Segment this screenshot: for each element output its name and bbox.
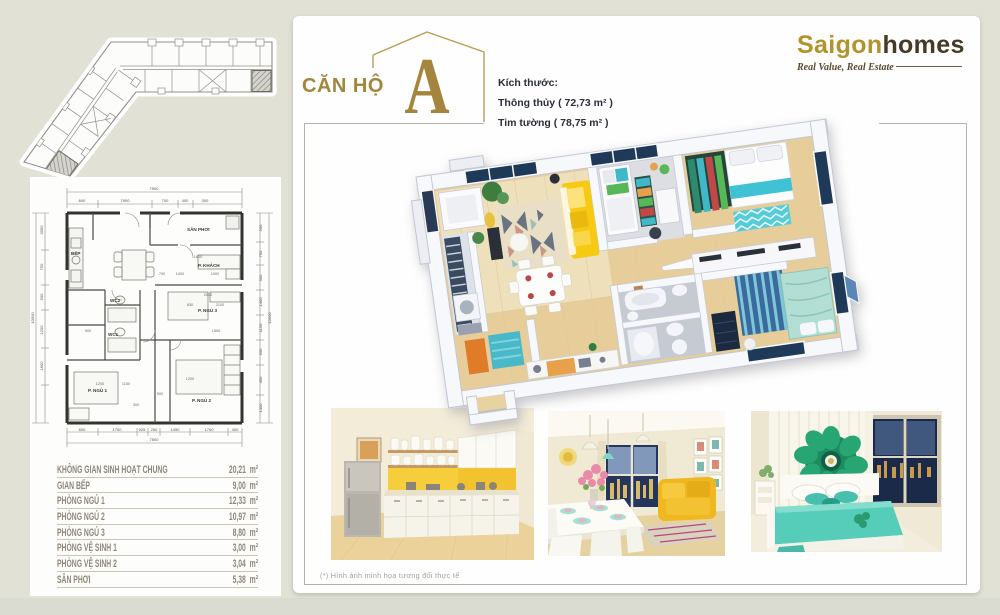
svg-text:P. KHÁCH: P. KHÁCH xyxy=(198,262,220,268)
svg-text:1400: 1400 xyxy=(258,403,263,413)
svg-text:1450: 1450 xyxy=(171,427,181,432)
svg-text:600: 600 xyxy=(258,348,263,355)
svg-text:1400: 1400 xyxy=(258,297,263,307)
svg-text:700: 700 xyxy=(159,272,165,276)
svg-text:7500: 7500 xyxy=(150,186,160,191)
svg-text:300: 300 xyxy=(133,403,139,407)
svg-text:WC1: WC1 xyxy=(108,332,119,337)
svg-text:1000: 1000 xyxy=(211,272,219,276)
svg-text:P. NGỦ 3: P. NGỦ 3 xyxy=(198,307,218,313)
svg-text:600: 600 xyxy=(39,293,44,300)
svg-text:900: 900 xyxy=(85,329,91,333)
svg-text:7900: 7900 xyxy=(121,198,131,203)
svg-text:300: 300 xyxy=(258,274,263,281)
svg-text:WC2: WC2 xyxy=(110,298,121,303)
svg-text:P. NGỦ 1: P. NGỦ 1 xyxy=(88,387,108,393)
svg-text:10500: 10500 xyxy=(267,312,272,324)
svg-text:1600: 1600 xyxy=(194,255,202,259)
svg-text:P. NGỦ 2: P. NGỦ 2 xyxy=(192,397,212,403)
svg-text:SÂN PHƠI: SÂN PHƠI xyxy=(187,226,210,232)
svg-text:250: 250 xyxy=(151,427,158,432)
svg-text:500: 500 xyxy=(258,224,263,231)
svg-text:1500: 1500 xyxy=(212,329,220,333)
svg-text:600: 600 xyxy=(79,427,86,432)
svg-text:400: 400 xyxy=(258,376,263,383)
svg-text:1400: 1400 xyxy=(176,272,184,276)
svg-text:700: 700 xyxy=(258,250,263,257)
svg-text:1200: 1200 xyxy=(96,382,104,386)
svg-text:1600: 1600 xyxy=(39,361,44,371)
svg-text:BẾP: BẾP xyxy=(71,250,80,256)
svg-text:1700: 1700 xyxy=(205,427,215,432)
svg-text:400: 400 xyxy=(232,427,239,432)
svg-text:400: 400 xyxy=(182,198,189,203)
svg-text:1200: 1200 xyxy=(186,377,194,381)
svg-text:1150: 1150 xyxy=(122,382,130,386)
svg-text:3050: 3050 xyxy=(39,225,44,235)
svg-text:750: 750 xyxy=(39,263,44,270)
svg-text:500: 500 xyxy=(157,392,163,396)
svg-text:2100: 2100 xyxy=(216,303,224,307)
svg-text:7500: 7500 xyxy=(150,437,160,442)
svg-text:2000: 2000 xyxy=(204,293,212,297)
svg-text:830: 830 xyxy=(187,303,193,307)
svg-text:300: 300 xyxy=(202,198,209,203)
svg-text:1700: 1700 xyxy=(113,427,123,432)
svg-text:925: 925 xyxy=(139,427,146,432)
svg-text:10500: 10500 xyxy=(30,312,35,324)
svg-text:700: 700 xyxy=(162,198,169,203)
svg-text:1150: 1150 xyxy=(258,323,263,332)
svg-text:1200: 1200 xyxy=(39,325,44,335)
svg-text:600: 600 xyxy=(79,198,86,203)
